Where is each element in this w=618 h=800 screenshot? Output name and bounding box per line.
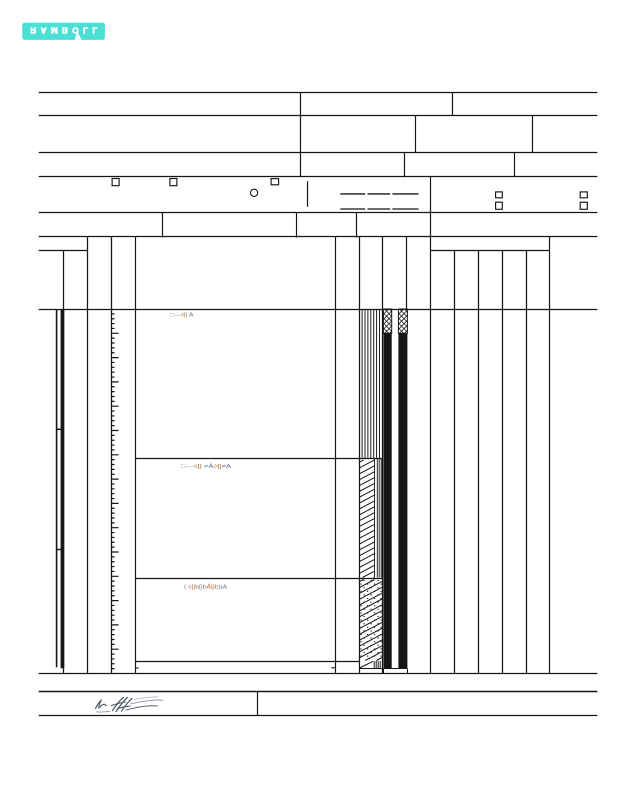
- svg-text:□—◊[| A: □—◊[| A: [170, 312, 194, 318]
- svg-text:RAMBOLL: RAMBOLL: [30, 26, 97, 36]
- svg-text:□—◊[| ≠Ä◊[|≠A: □—◊[| ≠Ä◊[|≠A: [181, 463, 232, 470]
- svg-text:( ◊[|b[|bÅ[|b)|A: ( ◊[|b[|bÅ[|b)|A: [184, 583, 228, 590]
